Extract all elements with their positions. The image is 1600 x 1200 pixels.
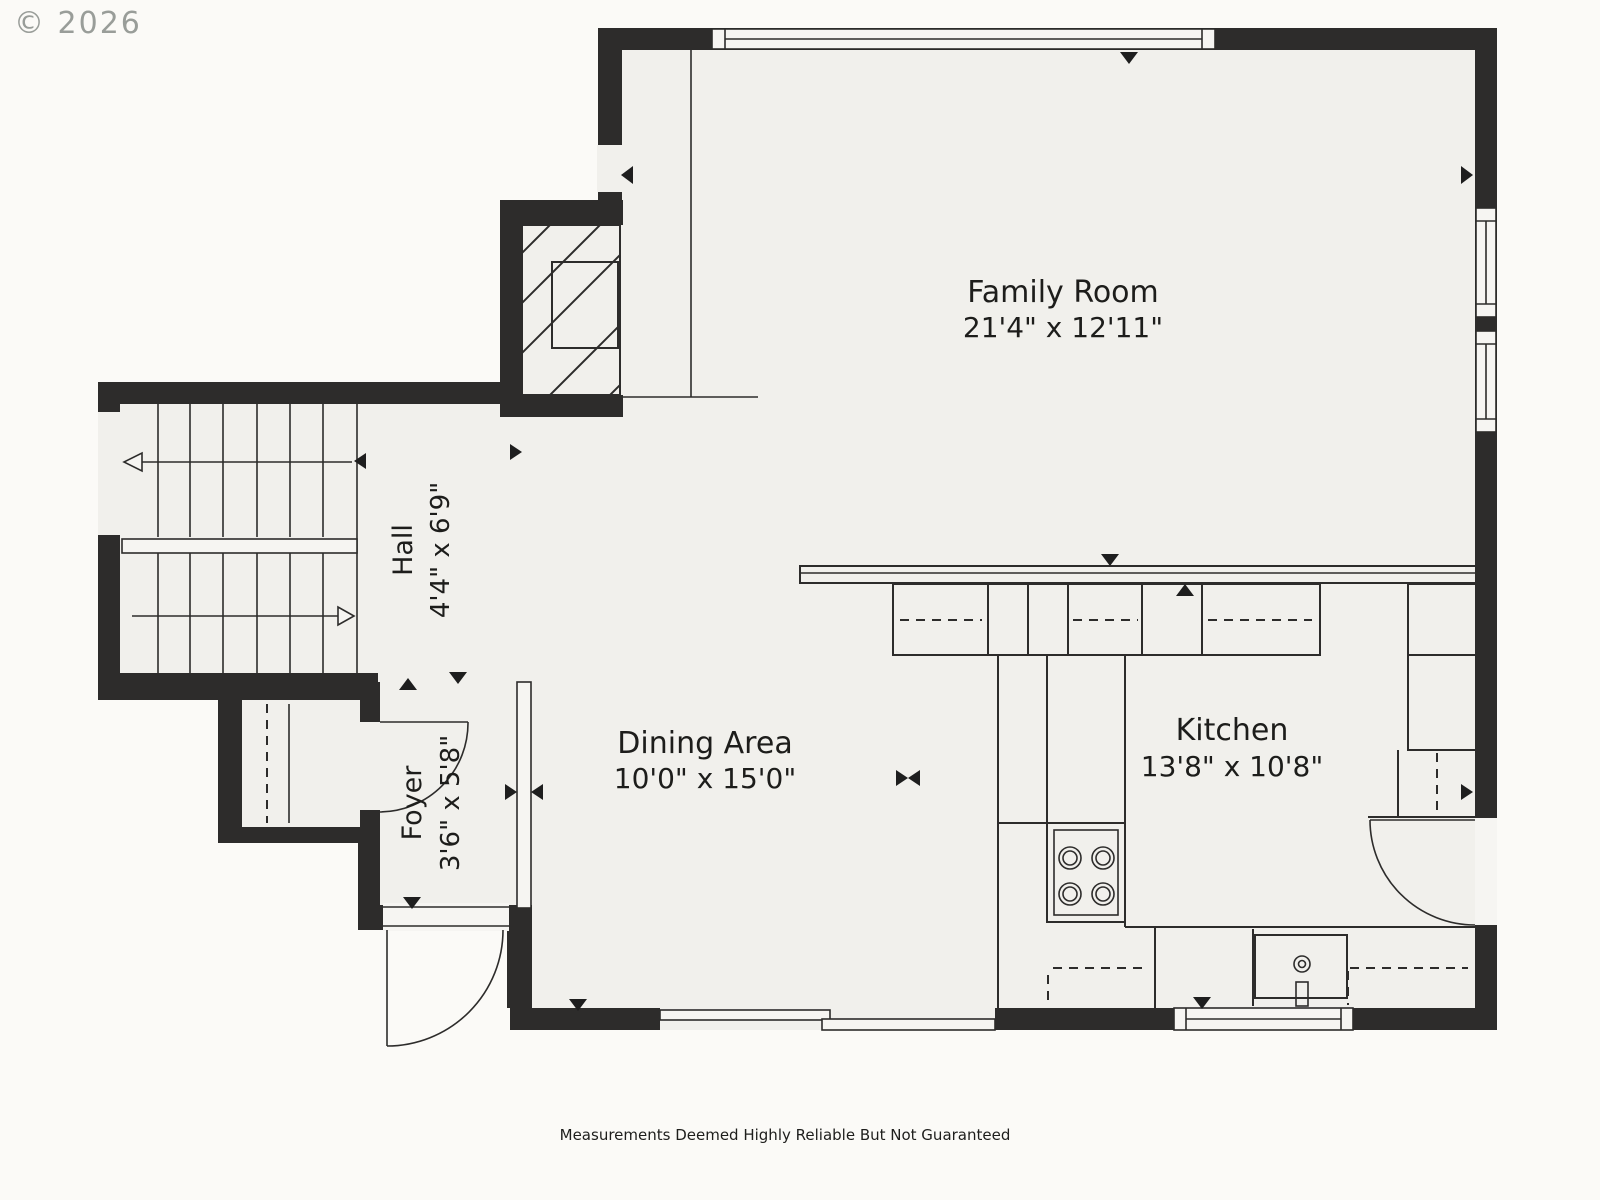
label-dining-area-dims: 10'0" x 15'0" — [614, 762, 796, 795]
wall-closet-right-bottom — [360, 810, 380, 843]
wall-foyer-east — [507, 905, 532, 1008]
wall-fireplace-left — [500, 200, 522, 417]
wall-under-stairs — [98, 673, 378, 700]
foyer-divider-wall — [517, 682, 531, 908]
window-right-lower — [1476, 331, 1496, 432]
label-kitchen: Kitchen — [1176, 713, 1289, 748]
wall-closet-bottom — [218, 827, 378, 843]
floorplan-canvas: Family Room 21'4" x 12'11" Kitchen 13'8"… — [0, 0, 1600, 1200]
label-dining-area: Dining Area — [617, 726, 792, 761]
label-hall: Hall — [388, 524, 419, 576]
label-foyer: Foyer — [397, 765, 428, 841]
label-family-room: Family Room — [967, 275, 1159, 310]
floorplan-page: © 2026 — [0, 0, 1600, 1200]
wall-familyroom-left-lower — [598, 192, 622, 225]
wall-closet-right-top — [360, 682, 380, 722]
wall-fireplace-bottom — [500, 395, 623, 417]
window-bottom-kitchen — [1174, 1008, 1353, 1030]
label-kitchen-dims: 13'8" x 10'8" — [1141, 750, 1323, 783]
disclaimer-text: Measurements Deemed Highly Reliable But … — [0, 1126, 1570, 1144]
wall-familyroom-left-upper — [598, 28, 622, 145]
copyright-watermark: © 2026 — [14, 6, 142, 41]
stairs-landing-rail — [122, 539, 357, 553]
wall-stairs-top — [98, 382, 522, 404]
wall-bottom-dining — [510, 1008, 660, 1030]
window-right-upper — [1476, 208, 1496, 317]
wall-opening-familyroom-left — [597, 145, 623, 192]
front-door — [383, 903, 509, 1046]
label-foyer-dims: 3'6" x 5'8" — [436, 735, 466, 871]
wall-foyer-west — [358, 843, 380, 930]
wall-stairs-left-lower — [98, 535, 120, 700]
label-hall-dims: 4'4" x 6'9" — [426, 482, 456, 618]
label-family-room-dims: 21'4" x 12'11" — [963, 311, 1163, 344]
wall-closet-left — [218, 682, 242, 827]
window-top — [712, 29, 1215, 49]
floor-area — [98, 28, 1497, 1030]
